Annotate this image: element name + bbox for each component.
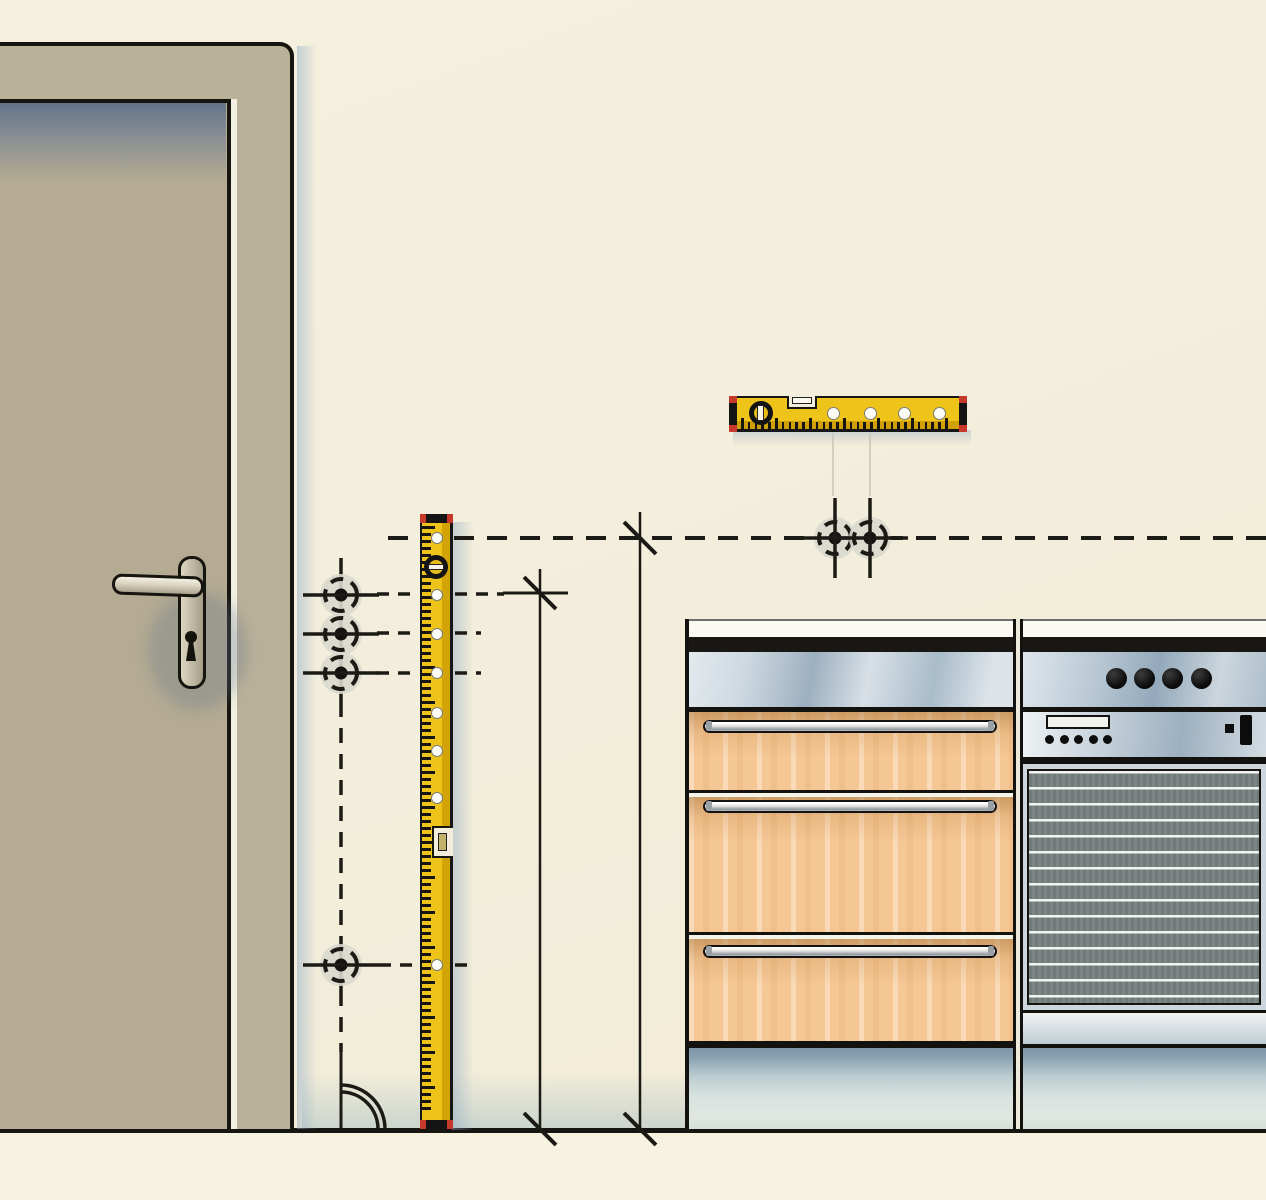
stove-knob [1106,668,1127,689]
ruler-tick [422,946,435,949]
ruler-tick [422,722,431,725]
ruler-tick [422,778,431,781]
level-hole [431,707,443,719]
ruler-tick [422,1072,431,1075]
ruler-tick [422,638,431,641]
ruler-tick [422,925,431,928]
ruler-tick [422,1093,431,1096]
ruler-tick [422,1030,431,1033]
vial-tube [792,397,812,404]
ruler-tick [422,904,431,907]
vial-bubble [428,564,444,570]
oven-control-button [1074,735,1083,744]
ruler-tick [422,939,431,942]
ruler-tick [795,422,798,430]
oven-control-button [1060,735,1069,744]
ruler-tick [422,757,431,760]
ruler-tick [857,422,860,430]
ruler-scale [420,514,453,1129]
ruler-tick [422,960,431,963]
ruler-tick [422,652,431,655]
ruler-tick [422,953,431,956]
ruler-tick [422,708,431,711]
oven-control-button [1089,735,1098,744]
stove-knob [1134,668,1155,689]
ruler-tick [809,418,812,430]
stove-knob [1162,668,1183,689]
ruler-tick [422,834,431,837]
ruler-tick [422,1058,431,1061]
ruler-tick [422,862,431,865]
ruler-tick [884,422,887,430]
level-hole [431,792,443,804]
measurement-layer [0,0,1266,1200]
ruler-tick [422,855,431,858]
ruler-tick [422,848,431,851]
ruler-tick [775,418,778,430]
ruler-tick [422,918,431,921]
ruler-tick [422,981,435,984]
ruler-tick [422,869,431,872]
stove-knob [1191,668,1212,689]
ruler-tick [422,1044,431,1047]
ruler-tick [877,418,880,430]
ruler-tick [422,533,431,536]
ruler-tick [768,422,771,430]
ruler-tick [422,603,431,606]
ruler-tick [911,418,914,430]
ruler-tick [422,792,431,795]
ruler-tick [422,743,431,746]
ruler-tick [422,645,431,648]
level-vial-notch [432,826,453,858]
ruler-tick [904,422,907,430]
ruler-tick [925,422,928,430]
ruler-tick [422,701,435,704]
ruler-tick [850,422,853,430]
ruler-tick [422,1051,435,1054]
ruler-tick [782,422,785,430]
ruler-tick [918,422,921,430]
ruler-tick [422,799,431,802]
ruler-tick [422,680,431,683]
ruler-tick [870,422,873,430]
ruler-tick [422,547,431,550]
ruler-tick [422,589,431,592]
ruler-tick [863,422,866,430]
ruler-tick [422,785,431,788]
ruler-tick [422,897,431,900]
ruler-tick [422,771,435,774]
level-hole [431,745,443,757]
ruler-tick [422,911,435,914]
ruler-tick [422,1065,431,1068]
vial-bubble [757,405,764,421]
ruler-tick [422,820,431,823]
ruler-tick [931,422,934,430]
ruler-tick [829,422,832,430]
ruler-tick [422,659,431,662]
ruler-tick [891,422,894,430]
ruler-tick [945,418,948,430]
level-hole [898,407,911,420]
level-hole [431,628,443,640]
ruler-tick [422,526,435,529]
ruler-tick [422,617,431,620]
ruler-tick [422,806,435,809]
ruler-tick [422,974,431,977]
level-hole [933,407,946,420]
ruler-tick [422,540,431,543]
ruler-tick [422,988,431,991]
ruler-tick [748,422,751,430]
vertical-spirit-level [420,514,453,1129]
ruler-tick [422,694,431,697]
level-vial-round [424,555,448,579]
ruler-tick [422,1016,435,1019]
ruler-tick [422,995,431,998]
level-hole [431,667,443,679]
ruler-tick [422,1009,431,1012]
ruler-tick [422,582,431,585]
ruler-tick [422,1079,431,1082]
ruler-tick [422,1037,431,1040]
level-vial-round [749,401,773,425]
ruler-tick [816,422,819,430]
ruler-tick [422,1086,435,1089]
ruler-tick [422,610,431,613]
ruler-tick [422,764,431,767]
ruler-tick [422,624,431,627]
ruler-tick [897,422,900,430]
level-vial-notch [787,396,817,409]
level-hole [864,407,877,420]
ruler-tick [823,422,826,430]
level-hole [431,589,443,601]
level-hole [431,959,443,971]
illustration-kitchen-installation [0,0,1266,1200]
ruler-tick [422,1023,431,1026]
ruler-tick [422,967,431,970]
ruler-tick [843,418,846,430]
oven-control-button [1103,735,1112,744]
ruler-tick [422,1002,431,1005]
ruler-tick [422,932,431,935]
ruler-tick [741,418,744,430]
horizontal-spirit-level [729,396,967,432]
ruler-tick [422,715,431,718]
ruler-tick [789,422,792,430]
ruler-tick [422,827,431,830]
ruler-tick [422,883,431,886]
ruler-tick [422,1100,431,1103]
oven-control-button [1045,735,1054,744]
level-hole [827,407,840,420]
ruler-tick [938,422,941,430]
level-hole [431,532,443,544]
ruler-tick [422,813,431,816]
ruler-tick [422,687,431,690]
ruler-tick [422,890,431,893]
ruler-tick [422,729,431,732]
ruler-tick [422,1107,431,1110]
ruler-tick [422,876,435,879]
ruler-tick [422,750,431,753]
ruler-tick [836,422,839,430]
vial-tube [438,833,447,851]
ruler-tick [422,673,431,676]
ruler-tick [422,736,435,739]
ruler-tick [802,422,805,430]
